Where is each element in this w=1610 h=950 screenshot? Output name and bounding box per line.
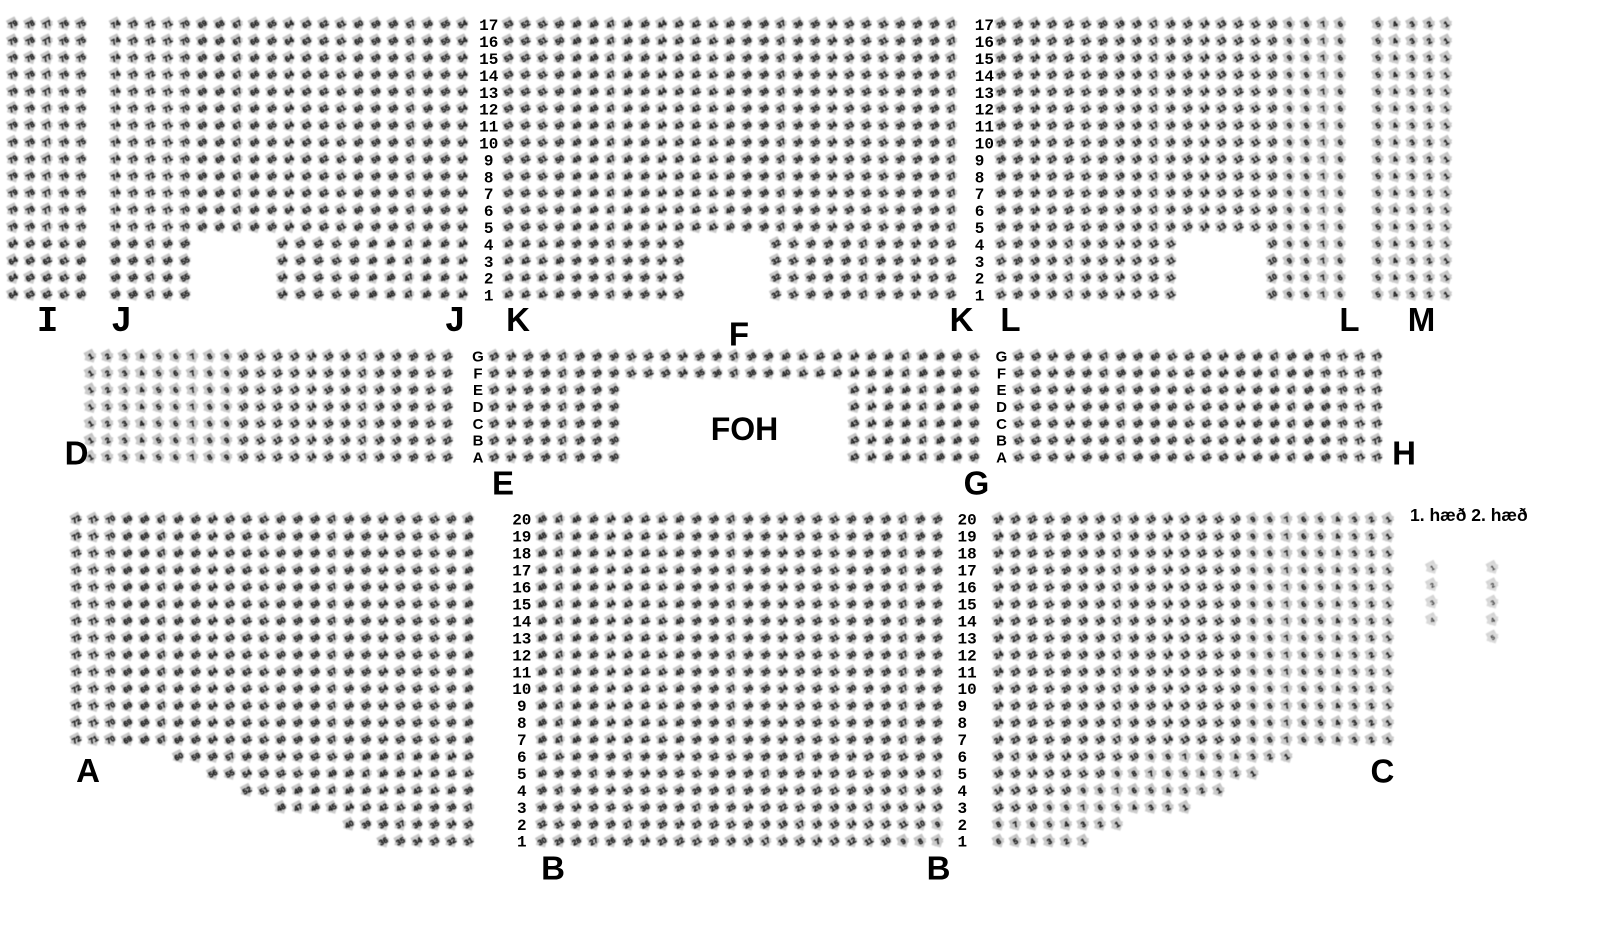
svg-text:3: 3 (958, 800, 968, 818)
svg-text:10: 10 (958, 681, 977, 699)
svg-text:10: 10 (479, 136, 498, 154)
svg-text:11: 11 (975, 119, 994, 137)
svg-text:13: 13 (512, 630, 531, 648)
svg-text:4: 4 (958, 783, 968, 801)
svg-text:2: 2 (484, 271, 494, 289)
svg-text:3: 3 (975, 254, 985, 272)
svg-text:13: 13 (975, 85, 994, 103)
svg-text:1: 1 (484, 288, 494, 306)
svg-text:I: I (37, 301, 59, 342)
svg-text:14: 14 (975, 68, 995, 86)
svg-text:G: G (472, 349, 484, 366)
svg-text:G: G (964, 465, 990, 502)
svg-text:6: 6 (484, 203, 494, 221)
svg-text:B: B (473, 433, 484, 450)
svg-text:7: 7 (958, 732, 968, 750)
svg-text:15: 15 (479, 51, 498, 69)
svg-text:7: 7 (975, 186, 985, 204)
svg-text:C: C (473, 416, 484, 433)
svg-text:E: E (996, 382, 1006, 399)
svg-text:A: A (996, 449, 1007, 466)
svg-text:4: 4 (484, 237, 494, 255)
svg-text:5: 5 (958, 766, 968, 784)
svg-text:1: 1 (975, 288, 985, 306)
svg-text:1. hæð 2. hæð: 1. hæð 2. hæð (1410, 505, 1528, 525)
svg-text:11: 11 (479, 119, 498, 137)
svg-text:8: 8 (975, 169, 985, 187)
svg-text:15: 15 (975, 51, 994, 69)
svg-text:H: H (1392, 435, 1416, 472)
svg-text:20: 20 (958, 512, 977, 530)
svg-text:J: J (444, 301, 466, 342)
svg-text:12: 12 (975, 102, 994, 120)
svg-text:F: F (473, 365, 482, 382)
svg-text:6: 6 (517, 749, 527, 767)
svg-text:17: 17 (958, 563, 977, 581)
svg-text:18: 18 (958, 546, 977, 564)
svg-text:17: 17 (479, 17, 498, 35)
svg-text:5: 5 (975, 220, 985, 238)
svg-text:9: 9 (958, 698, 968, 716)
svg-text:20: 20 (512, 512, 531, 530)
svg-text:7: 7 (517, 732, 527, 750)
svg-text:4: 4 (517, 783, 527, 801)
svg-text:18: 18 (512, 546, 531, 564)
svg-text:D: D (996, 399, 1007, 416)
svg-text:16: 16 (512, 580, 531, 598)
svg-text:16: 16 (975, 34, 994, 52)
svg-text:13: 13 (958, 630, 977, 648)
svg-text:2: 2 (517, 817, 527, 835)
svg-text:9: 9 (975, 152, 985, 170)
svg-text:8: 8 (517, 715, 527, 733)
svg-text:9: 9 (517, 698, 527, 716)
svg-text:4: 4 (975, 237, 985, 255)
svg-text:B: B (927, 850, 951, 887)
svg-text:19: 19 (958, 529, 977, 547)
svg-text:8: 8 (958, 715, 968, 733)
svg-text:G: G (996, 349, 1008, 366)
svg-text:L: L (1339, 301, 1359, 338)
svg-text:15: 15 (512, 597, 531, 615)
svg-text:B: B (996, 433, 1007, 450)
svg-text:15: 15 (958, 597, 977, 615)
svg-text:11: 11 (512, 664, 531, 682)
svg-text:16: 16 (958, 580, 977, 598)
svg-text:K: K (950, 301, 974, 338)
svg-text:12: 12 (512, 647, 531, 665)
svg-text:A: A (76, 752, 100, 789)
svg-text:10: 10 (975, 136, 994, 154)
svg-text:2: 2 (958, 817, 968, 835)
svg-text:2: 2 (975, 271, 985, 289)
svg-text:L: L (1000, 301, 1020, 338)
svg-text:B: B (541, 850, 565, 887)
svg-text:12: 12 (958, 647, 977, 665)
svg-text:14: 14 (958, 613, 978, 631)
svg-text:19: 19 (512, 529, 531, 547)
svg-text:7: 7 (484, 186, 494, 204)
svg-text:K: K (506, 301, 530, 338)
svg-text:1: 1 (958, 834, 968, 852)
svg-text:5: 5 (517, 766, 527, 784)
svg-text:17: 17 (512, 563, 531, 581)
svg-text:J: J (111, 301, 133, 342)
svg-text:F: F (997, 365, 1006, 382)
svg-text:E: E (473, 382, 483, 399)
svg-text:17: 17 (975, 17, 994, 35)
svg-text:5: 5 (484, 220, 494, 238)
svg-text:9: 9 (484, 152, 494, 170)
svg-text:3: 3 (517, 800, 527, 818)
svg-text:14: 14 (479, 68, 499, 86)
svg-text:13: 13 (479, 85, 498, 103)
svg-text:6: 6 (975, 203, 985, 221)
svg-text:1: 1 (517, 834, 527, 852)
svg-text:10: 10 (512, 681, 531, 699)
svg-text:E: E (492, 465, 514, 502)
svg-text:6: 6 (958, 749, 968, 767)
svg-text:14: 14 (512, 613, 532, 631)
svg-text:A: A (473, 449, 484, 466)
svg-text:16: 16 (479, 34, 498, 52)
svg-text:D: D (473, 399, 484, 416)
svg-text:FOH: FOH (711, 411, 779, 447)
svg-text:11: 11 (958, 664, 977, 682)
svg-text:C: C (996, 416, 1007, 433)
svg-text:C: C (1370, 753, 1394, 790)
svg-text:3: 3 (484, 254, 494, 272)
svg-text:8: 8 (484, 169, 494, 187)
svg-text:F: F (729, 316, 749, 353)
svg-text:D: D (65, 435, 89, 472)
svg-text:M: M (1408, 301, 1436, 338)
svg-text:12: 12 (479, 102, 498, 120)
